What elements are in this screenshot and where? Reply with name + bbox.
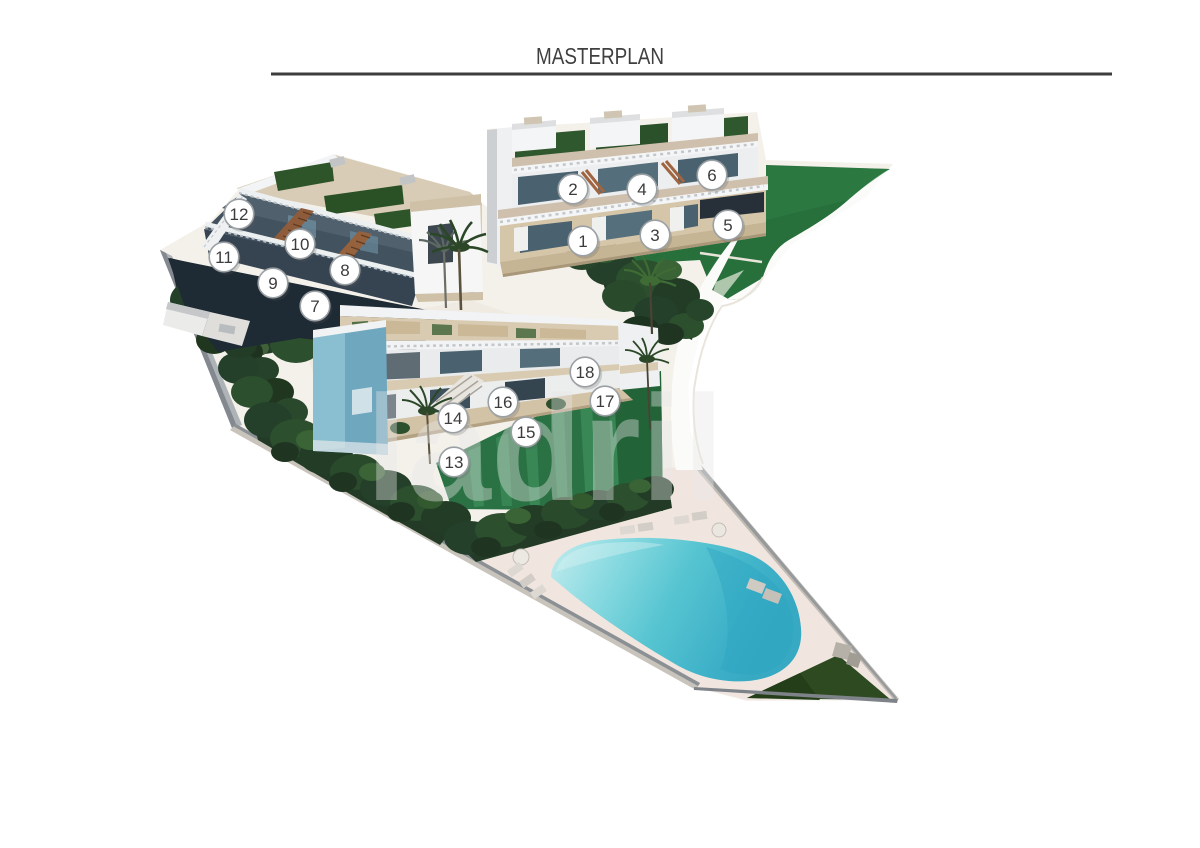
svg-text:9: 9: [268, 274, 277, 293]
svg-text:3: 3: [650, 226, 659, 245]
svg-text:12: 12: [230, 205, 249, 224]
svg-text:ladril: ladril: [366, 364, 724, 532]
svg-text:8: 8: [340, 261, 349, 280]
svg-text:10: 10: [291, 235, 310, 254]
svg-text:5: 5: [723, 216, 732, 235]
svg-text:13: 13: [445, 453, 464, 472]
svg-text:MASTERPLAN: MASTERPLAN: [536, 43, 664, 69]
svg-text:1: 1: [578, 232, 587, 251]
svg-text:14: 14: [444, 409, 463, 428]
svg-text:18: 18: [576, 363, 595, 382]
svg-text:7: 7: [310, 297, 319, 316]
svg-text:16: 16: [494, 393, 513, 412]
svg-text:6: 6: [707, 166, 716, 185]
svg-text:11: 11: [215, 248, 233, 267]
svg-text:2: 2: [568, 180, 577, 199]
svg-text:4: 4: [637, 180, 646, 199]
svg-text:15: 15: [517, 423, 536, 442]
svg-text:17: 17: [596, 392, 615, 411]
